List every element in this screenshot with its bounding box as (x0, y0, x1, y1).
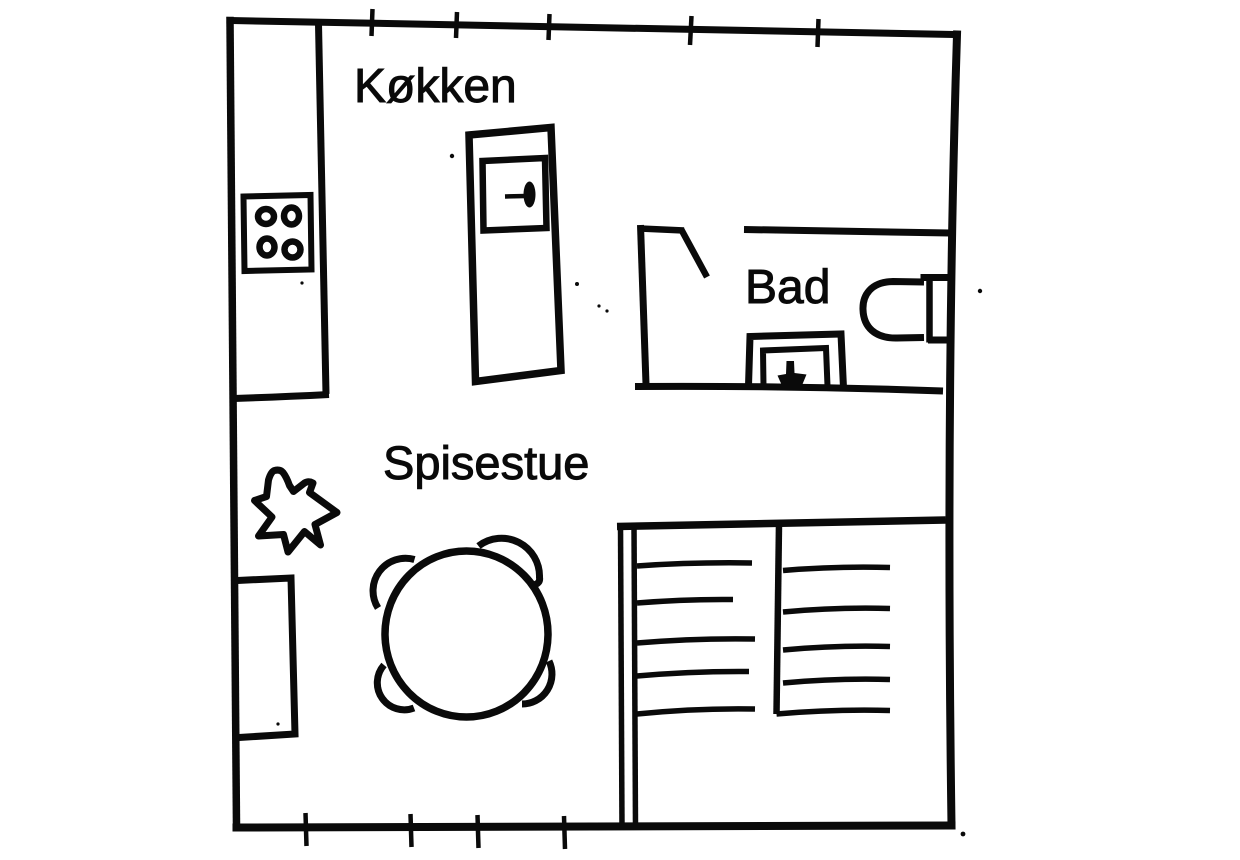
svg-text:Køkken: Køkken (354, 60, 517, 113)
svg-text:Spisestue: Spisestue (383, 436, 589, 489)
svg-text:Bad: Bad (745, 261, 830, 314)
